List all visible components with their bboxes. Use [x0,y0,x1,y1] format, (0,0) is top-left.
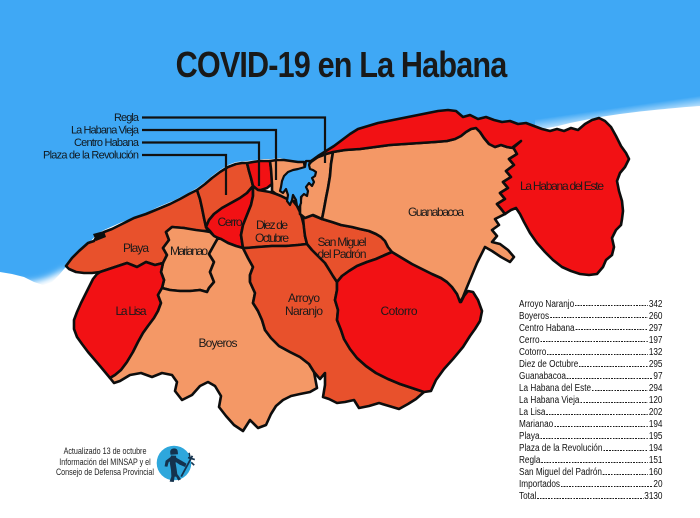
svg-text:Regla: Regla [114,112,140,124]
svg-text:Naranjo: Naranjo [285,304,323,318]
svg-text:Cerro: Cerro [218,215,243,229]
svg-text:Octubre: Octubre [255,231,289,245]
svg-text:Guanabacoa: Guanabacoa [408,205,464,219]
svg-text:Boyeros: Boyeros [199,336,238,350]
svg-text:La Habana Vieja: La Habana Vieja [71,125,140,137]
svg-text:Diez de: Diez de [256,218,288,232]
svg-text:del Padrón: del Padrón [318,247,367,261]
svg-text:La Lisa: La Lisa [116,304,147,318]
svg-text:Marianao: Marianao [170,244,208,258]
svg-text:Plaza de la Revolución: Plaza de la Revolución [43,150,139,162]
svg-text:Cotorro: Cotorro [381,304,418,318]
svg-text:Centro Habana: Centro Habana [74,137,140,149]
svg-text:Arroyo: Arroyo [288,291,320,305]
svg-text:La Habana del Este: La Habana del Este [520,179,604,193]
svg-text:Playa: Playa [123,241,149,255]
